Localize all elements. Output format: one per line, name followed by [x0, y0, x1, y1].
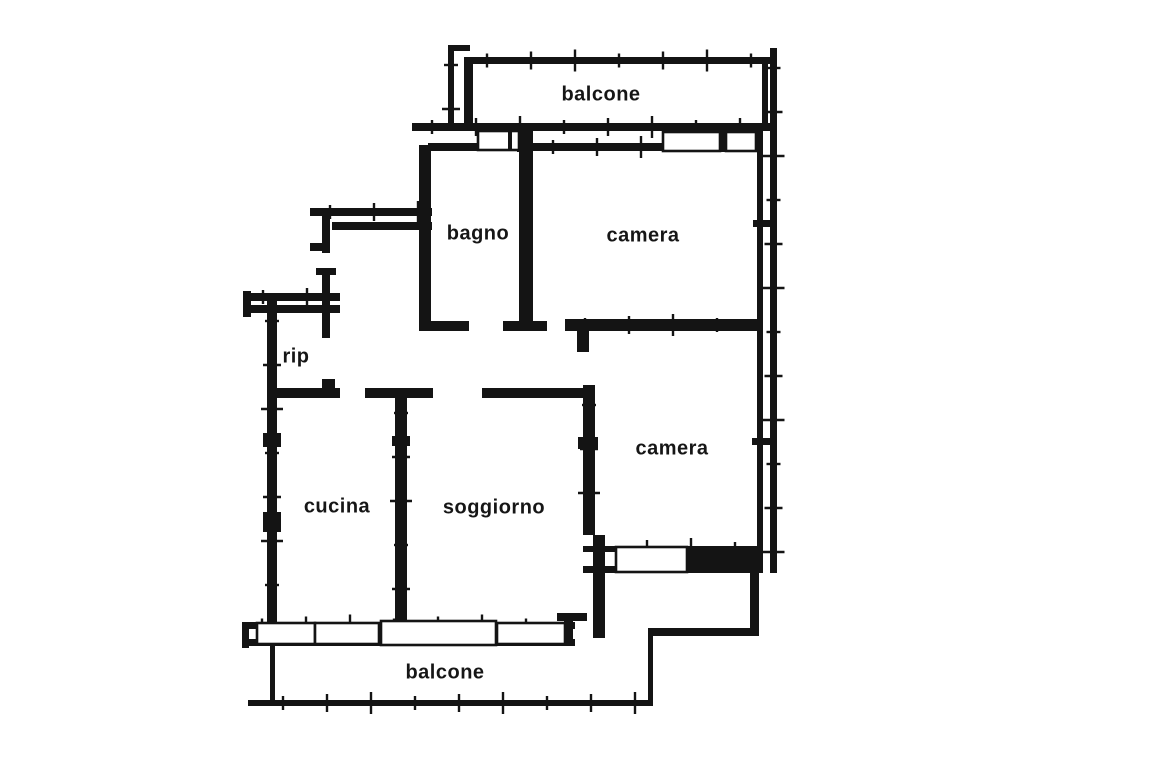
floor-plan-page: balconebagnocameraripcameracucinasoggior…: [0, 0, 1152, 770]
wall-segment: [250, 305, 340, 313]
wall-segment: [267, 301, 277, 646]
room-label-balcone-top: balcone: [561, 83, 640, 105]
wall-segment: [762, 57, 768, 123]
wall-segment: [316, 268, 336, 275]
window-symbol: [257, 623, 315, 644]
room-label-camera-bottom: camera: [635, 437, 708, 459]
wall-segment: [428, 143, 480, 151]
wall-segment: [419, 321, 469, 331]
room-label-cucina: cucina: [304, 495, 371, 517]
wall-segment: [322, 379, 335, 388]
wall-segment: [503, 321, 547, 331]
wall-segment: [464, 57, 473, 128]
window-symbol: [616, 547, 687, 572]
wall-segment: [648, 628, 759, 636]
wall-segment: [757, 123, 763, 573]
wall-segment: [482, 388, 583, 398]
wall-segment: [448, 45, 470, 51]
room-label-balcone-bottom: balcone: [405, 661, 484, 683]
window-symbol: [315, 623, 379, 644]
wall-segment: [648, 630, 653, 706]
window-symbol: [663, 132, 720, 151]
room-label-bagno: bagno: [447, 222, 510, 244]
room-label-rip: rip: [282, 345, 309, 367]
wall-segment: [753, 220, 770, 227]
window-symbol: [478, 131, 519, 150]
wall-segment: [578, 437, 598, 449]
wall-segment: [752, 438, 770, 445]
wall-segment: [263, 433, 281, 447]
wall-segment: [770, 48, 777, 573]
wall-segment: [687, 546, 757, 573]
wall-segment: [419, 145, 431, 330]
wall-segment: [565, 319, 757, 331]
wall-segment: [310, 243, 324, 251]
wall-segment: [270, 646, 275, 706]
wall-segment: [750, 571, 759, 631]
floor-plan: balconebagnocameraripcameracucinasoggior…: [0, 0, 1152, 770]
wall-segment: [243, 293, 340, 301]
wall-segment: [412, 123, 770, 131]
wall-segment: [332, 222, 432, 230]
wall-segment: [395, 393, 407, 622]
wall-segment: [577, 331, 589, 352]
wall-segment: [392, 436, 410, 446]
wall-segment: [263, 512, 281, 532]
wall-segment: [267, 388, 340, 398]
wall-segment: [519, 150, 533, 322]
wall-segment: [322, 268, 330, 338]
window-symbol: [726, 132, 756, 151]
window-symbol: [497, 623, 565, 644]
wall-segment: [583, 385, 595, 535]
room-label-soggiorno: soggiorno: [443, 496, 545, 518]
window-symbol: [381, 621, 496, 645]
room-label-camera-top: camera: [606, 224, 679, 246]
wall-segment: [448, 45, 454, 128]
